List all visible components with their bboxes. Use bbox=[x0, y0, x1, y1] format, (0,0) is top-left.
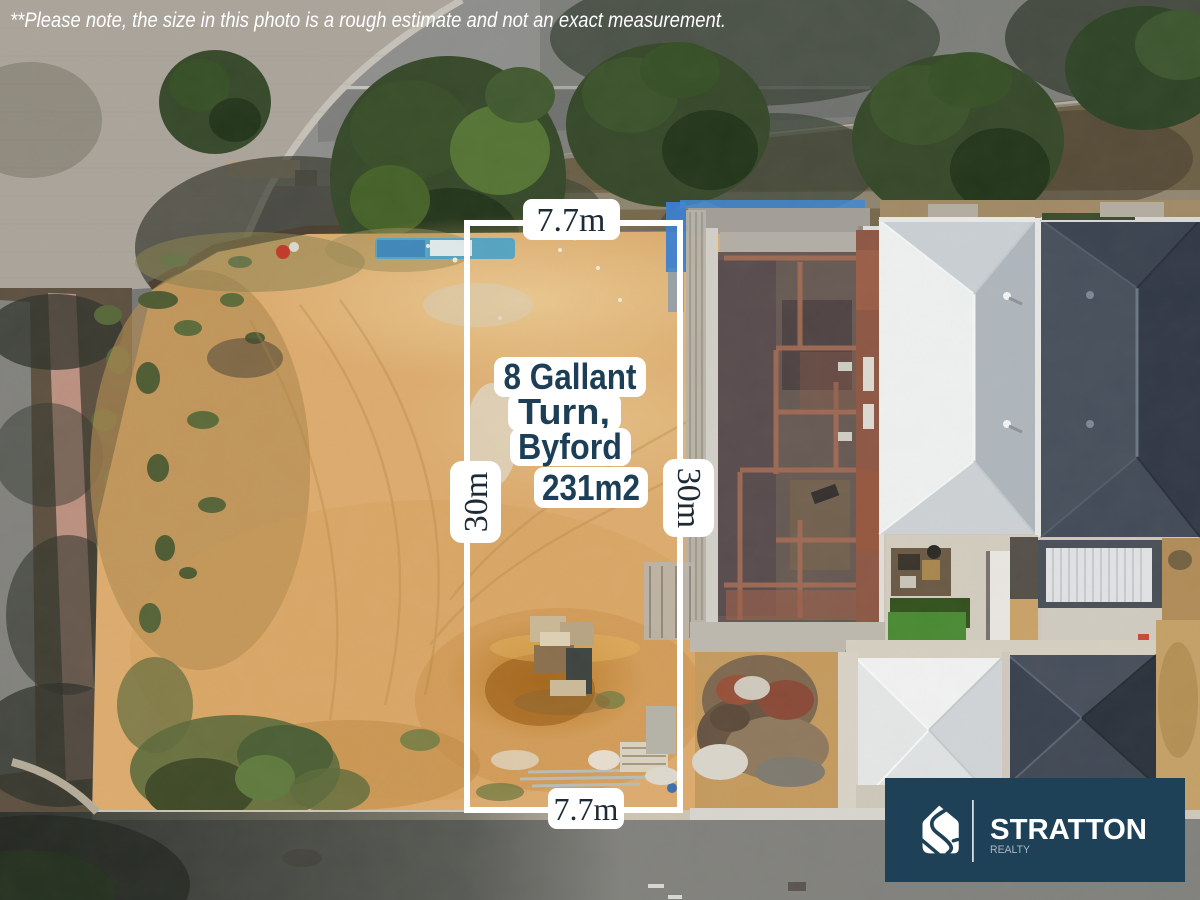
svg-text:**Please note, the size in thi: **Please note, the size in this photo is… bbox=[10, 9, 726, 32]
svg-text:30m: 30m bbox=[458, 472, 495, 532]
svg-text:7.7m: 7.7m bbox=[554, 791, 619, 827]
svg-text:30m: 30m bbox=[670, 468, 707, 528]
svg-text:Byford: Byford bbox=[518, 426, 622, 467]
svg-text:STRATTON: STRATTON bbox=[990, 814, 1147, 846]
svg-text:7.7m: 7.7m bbox=[537, 202, 606, 239]
svg-text:REALTY: REALTY bbox=[990, 844, 1031, 856]
svg-text:231m2: 231m2 bbox=[542, 467, 640, 508]
